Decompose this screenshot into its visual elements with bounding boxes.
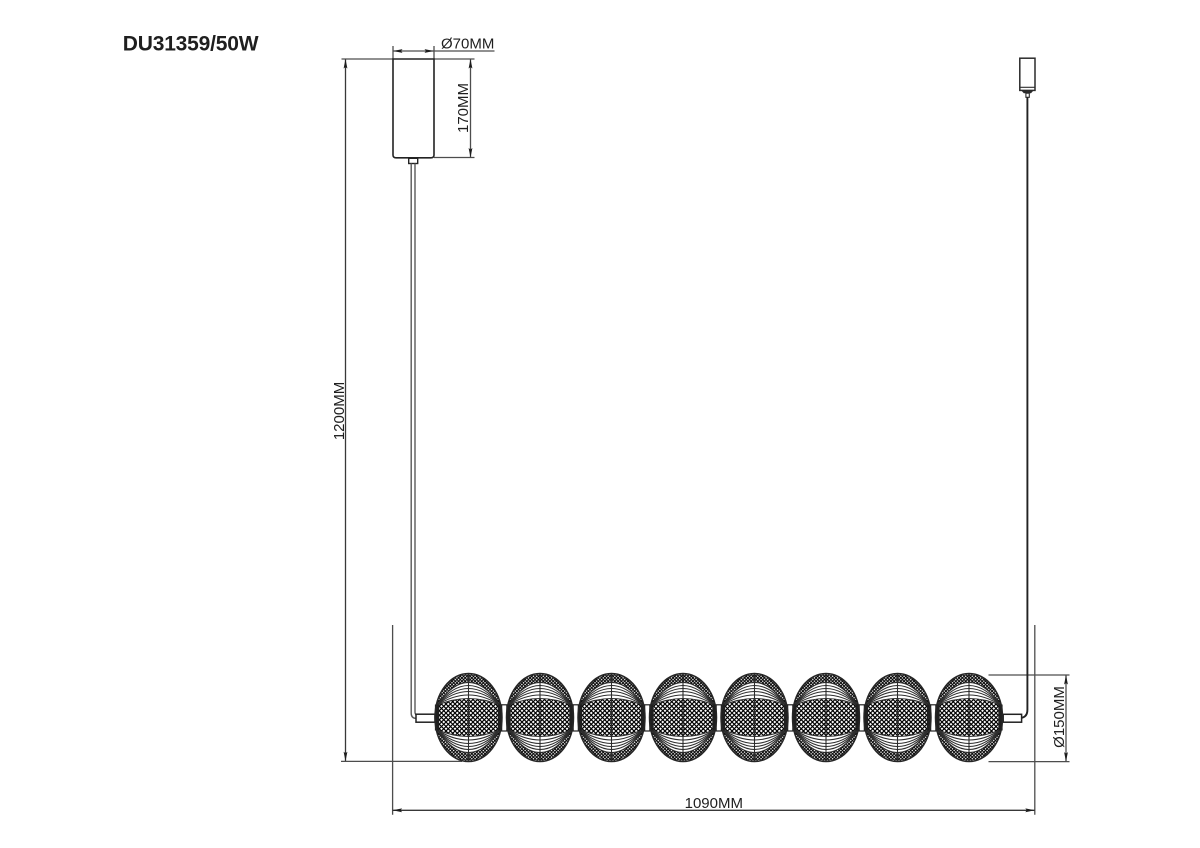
- svg-text:DU31359/50W: DU31359/50W: [123, 33, 259, 56]
- svg-text:1090MM: 1090MM: [685, 795, 743, 812]
- svg-text:Ø150MM: Ø150MM: [1051, 686, 1068, 748]
- svg-text:Ø70MM: Ø70MM: [441, 36, 494, 53]
- svg-text:1200MM: 1200MM: [331, 382, 348, 440]
- svg-text:170MM: 170MM: [455, 83, 472, 133]
